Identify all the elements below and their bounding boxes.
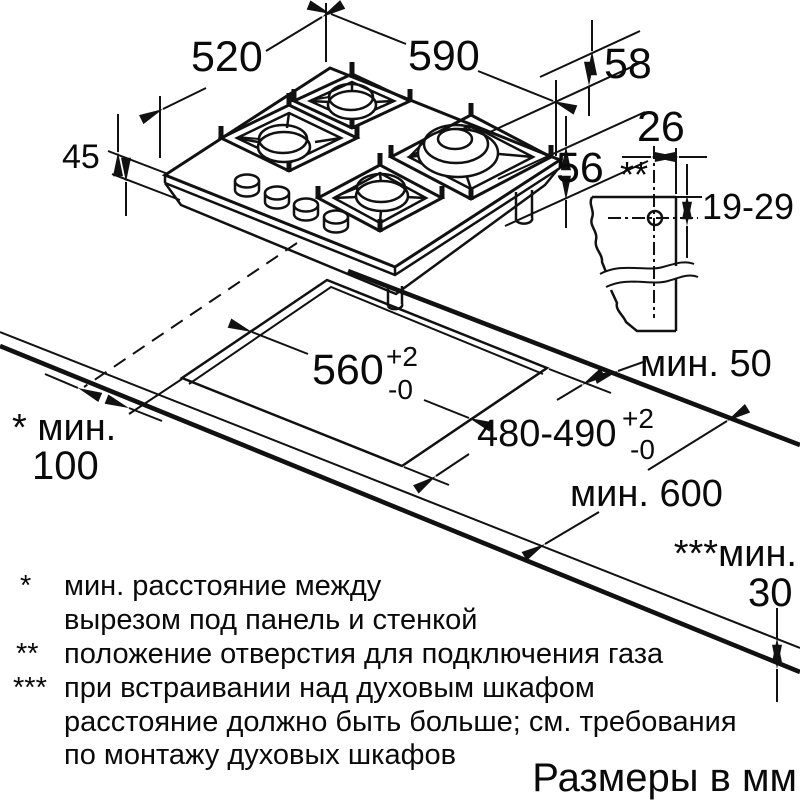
break-line-1 xyxy=(600,262,694,274)
wall-hidden-line xyxy=(84,243,297,387)
dim-520: 520 xyxy=(191,33,263,81)
dim-560-line-b xyxy=(424,400,469,418)
dim-590-line-a xyxy=(331,14,406,44)
dim-560-tol-minus: -0 xyxy=(388,374,413,405)
footnote-line: при встраивании над духовым шкафом xyxy=(64,672,595,704)
footnote-line: вырезом под панель и стенкой xyxy=(64,604,477,636)
dim-19-29: 19-29 xyxy=(702,186,794,227)
dim-520-line-a xyxy=(266,17,322,51)
detail-left-edge xyxy=(591,197,606,272)
installation-diagram: 520 590 58 56 45 26 ** 19-29 xyxy=(0,0,800,800)
units-note: Размеры в мм xyxy=(532,756,797,800)
detail-bottom xyxy=(611,290,676,331)
footnote-line: расстояние должно быть больше; см. требо… xyxy=(64,706,737,738)
footnote-line: по монтажу духовых шкафов xyxy=(64,739,456,771)
min100-value: 100 xyxy=(32,444,99,488)
dim-480-ext-a xyxy=(549,369,611,393)
min100-label: * мин. xyxy=(12,407,116,449)
footnote-line: мин. расстояние между xyxy=(64,570,382,602)
dim-480-line-b xyxy=(436,454,469,476)
dim-520-line-b xyxy=(163,88,206,109)
dim-480-tol-minus: -0 xyxy=(630,434,655,465)
footnote-line: положение отверстия для подключения газа xyxy=(64,638,664,670)
dim-590: 590 xyxy=(408,32,480,80)
min50-label: мин. 50 xyxy=(640,343,772,385)
dim-560: 560 xyxy=(312,346,384,394)
dim-480-ext-b xyxy=(404,467,449,485)
dim-480-tol-plus: +2 xyxy=(622,403,654,434)
dim-56: 56 xyxy=(556,144,604,192)
min30-value: 30 xyxy=(748,571,793,615)
dim-560-line-a xyxy=(252,332,308,354)
footnote-marker-3: *** xyxy=(13,672,47,704)
hob xyxy=(165,62,560,309)
gas-position-marker: ** xyxy=(620,154,648,195)
dim-560-tol-plus: +2 xyxy=(386,341,418,372)
footnote-marker-2: ** xyxy=(16,638,39,670)
dim-58: 58 xyxy=(604,40,652,88)
dim-480-490: 480-490 xyxy=(477,413,616,455)
footnote-marker-1: * xyxy=(20,570,31,602)
min600-arrow-b xyxy=(545,512,599,544)
min600-arrow-a xyxy=(648,421,727,470)
dim-26: 26 xyxy=(637,103,685,151)
break-line-2 xyxy=(606,276,698,287)
dim-480-line-a xyxy=(557,385,582,400)
min600-label: мин. 600 xyxy=(570,473,723,515)
diagram-canvas: 520 590 58 56 45 26 ** 19-29 xyxy=(0,0,800,800)
dim-45: 45 xyxy=(62,138,100,176)
min30-label: ***мин. xyxy=(674,533,797,575)
